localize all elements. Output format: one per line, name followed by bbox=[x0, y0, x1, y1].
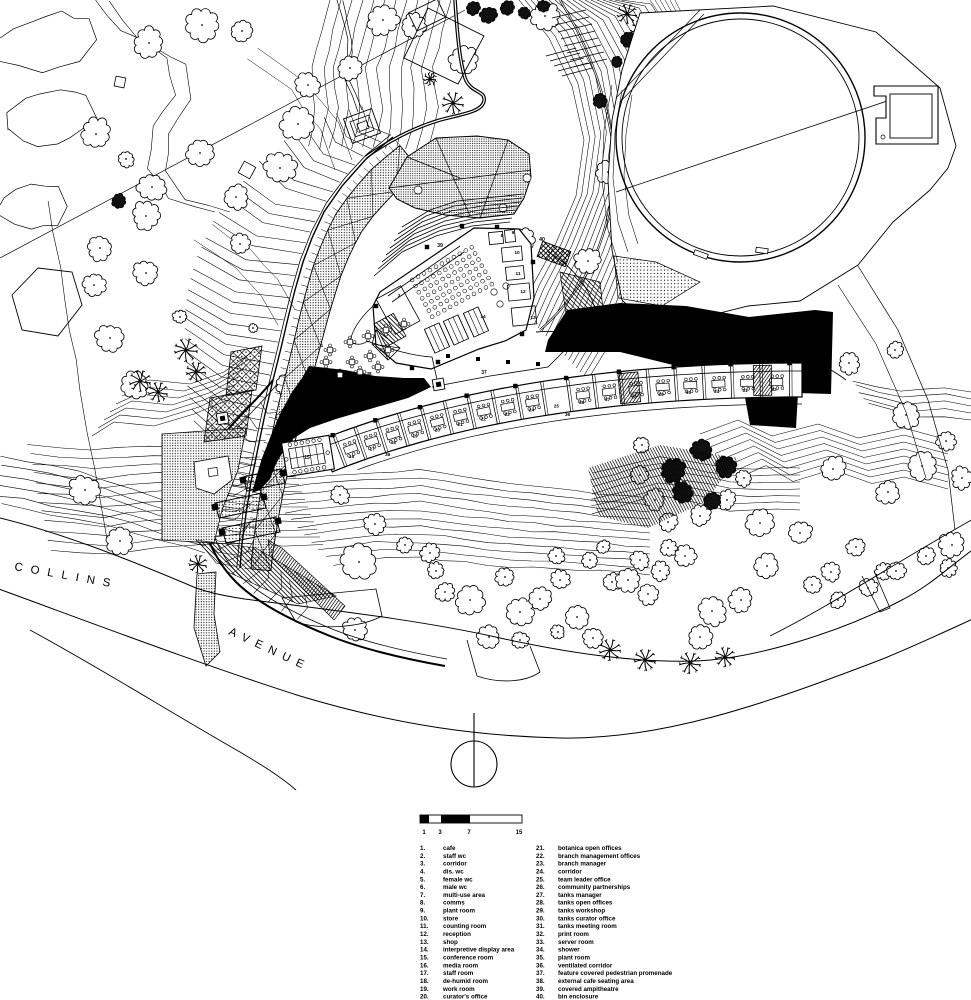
svg-text:30: 30 bbox=[686, 390, 692, 395]
svg-text:shower: shower bbox=[558, 947, 580, 954]
svg-text:plant room: plant room bbox=[443, 908, 475, 915]
svg-text:19: 19 bbox=[413, 433, 419, 438]
svg-text:25: 25 bbox=[554, 404, 560, 409]
svg-text:bin enclosure: bin enclosure bbox=[558, 994, 599, 1000]
svg-text:24.: 24. bbox=[536, 869, 545, 876]
svg-text:comms: comms bbox=[443, 900, 465, 907]
svg-text:2.: 2. bbox=[420, 853, 425, 860]
svg-text:36.: 36. bbox=[536, 962, 545, 969]
svg-text:external cafe seating area: external cafe seating area bbox=[558, 978, 634, 985]
svg-text:13.: 13. bbox=[420, 939, 429, 946]
svg-text:29: 29 bbox=[659, 392, 665, 397]
svg-text:23.: 23. bbox=[536, 861, 545, 868]
svg-text:conference room: conference room bbox=[443, 955, 494, 962]
svg-text:store: store bbox=[443, 915, 459, 922]
svg-text:9.: 9. bbox=[420, 908, 425, 915]
svg-text:39: 39 bbox=[437, 243, 443, 249]
svg-text:tanks manager: tanks manager bbox=[558, 892, 602, 899]
svg-text:curator's office: curator's office bbox=[443, 994, 488, 1000]
svg-text:dis. wc: dis. wc bbox=[443, 869, 464, 876]
svg-text:tanks workshop: tanks workshop bbox=[558, 908, 605, 915]
svg-text:14: 14 bbox=[480, 314, 486, 320]
svg-text:de-humid room: de-humid room bbox=[443, 978, 489, 985]
svg-text:3.: 3. bbox=[420, 861, 425, 868]
svg-text:male wc: male wc bbox=[443, 884, 468, 891]
svg-text:29.: 29. bbox=[536, 908, 545, 915]
svg-text:33: 33 bbox=[801, 387, 807, 392]
svg-text:corridor: corridor bbox=[558, 869, 582, 876]
svg-text:24: 24 bbox=[529, 408, 535, 413]
svg-text:16: 16 bbox=[349, 454, 355, 459]
svg-text:33.: 33. bbox=[536, 939, 545, 946]
svg-text:25.: 25. bbox=[536, 876, 545, 883]
svg-text:botanica open offices: botanica open offices bbox=[558, 845, 622, 852]
svg-text:22.: 22. bbox=[536, 853, 545, 860]
svg-text:11.: 11. bbox=[420, 923, 429, 930]
svg-text:staff wc: staff wc bbox=[443, 853, 467, 860]
svg-text:15.: 15. bbox=[420, 955, 429, 962]
svg-text:31: 31 bbox=[743, 388, 749, 393]
svg-text:1.: 1. bbox=[420, 845, 425, 852]
svg-text:21: 21 bbox=[458, 422, 464, 427]
svg-text:34.: 34. bbox=[536, 947, 545, 954]
svg-text:ventilated corridor: ventilated corridor bbox=[558, 962, 613, 969]
svg-text:19.: 19. bbox=[420, 986, 429, 993]
svg-text:23: 23 bbox=[505, 412, 511, 417]
svg-text:36: 36 bbox=[385, 452, 391, 458]
svg-text:37.: 37. bbox=[536, 970, 545, 977]
svg-text:6.: 6. bbox=[420, 884, 425, 891]
svg-text:reception: reception bbox=[443, 931, 471, 938]
svg-text:tanks curator office: tanks curator office bbox=[558, 915, 616, 922]
svg-text:28: 28 bbox=[632, 394, 638, 399]
svg-text:5.: 5. bbox=[420, 876, 425, 883]
svg-text:12: 12 bbox=[520, 289, 526, 295]
svg-text:10.: 10. bbox=[420, 915, 429, 922]
svg-text:21.: 21. bbox=[536, 845, 545, 852]
svg-text:female wc: female wc bbox=[443, 876, 473, 883]
svg-text:8: 8 bbox=[501, 233, 504, 239]
svg-text:team leader office: team leader office bbox=[558, 876, 611, 883]
svg-text:22: 22 bbox=[481, 417, 487, 422]
svg-text:26: 26 bbox=[579, 400, 585, 405]
svg-text:40.: 40. bbox=[536, 994, 545, 1000]
svg-text:work room: work room bbox=[442, 986, 475, 993]
svg-text:30.: 30. bbox=[536, 915, 545, 922]
svg-text:17.: 17. bbox=[420, 970, 429, 977]
svg-text:18: 18 bbox=[391, 440, 397, 445]
svg-text:37: 37 bbox=[481, 370, 487, 376]
svg-text:7.: 7. bbox=[420, 892, 425, 899]
svg-text:27: 27 bbox=[605, 397, 611, 402]
svg-text:31.: 31. bbox=[536, 923, 545, 930]
svg-text:36: 36 bbox=[565, 412, 571, 418]
svg-text:35.: 35. bbox=[536, 955, 545, 962]
svg-text:40: 40 bbox=[539, 237, 545, 243]
svg-text:38: 38 bbox=[366, 371, 372, 376]
svg-text:14.: 14. bbox=[420, 947, 429, 954]
svg-text:32: 32 bbox=[772, 387, 778, 392]
svg-text:15: 15 bbox=[304, 455, 310, 461]
svg-text:shop: shop bbox=[443, 939, 458, 946]
svg-text:10: 10 bbox=[514, 250, 520, 256]
svg-text:39.: 39. bbox=[536, 986, 545, 993]
svg-text:multi-use area: multi-use area bbox=[443, 892, 486, 899]
svg-text:community partnerships: community partnerships bbox=[558, 884, 631, 891]
svg-text:15: 15 bbox=[516, 830, 523, 836]
svg-text:branch management offices: branch management offices bbox=[558, 853, 641, 860]
svg-text:18.: 18. bbox=[420, 978, 429, 985]
svg-text:13: 13 bbox=[530, 315, 536, 321]
svg-text:38.: 38. bbox=[536, 978, 545, 985]
svg-text:3: 3 bbox=[398, 293, 401, 299]
svg-text:4.: 4. bbox=[420, 869, 425, 876]
svg-text:20: 20 bbox=[435, 427, 441, 432]
svg-text:interpretive display area: interpretive display area bbox=[443, 947, 515, 954]
svg-text:print room: print room bbox=[558, 931, 589, 938]
svg-text:counting room: counting room bbox=[443, 923, 487, 930]
svg-text:staff room: staff room bbox=[443, 970, 474, 977]
svg-text:9: 9 bbox=[512, 230, 515, 236]
svg-text:8.: 8. bbox=[420, 900, 425, 907]
svg-text:26.: 26. bbox=[536, 884, 545, 891]
svg-text:34: 34 bbox=[714, 389, 720, 394]
svg-text:32.: 32. bbox=[536, 931, 545, 938]
svg-text:12.: 12. bbox=[420, 931, 429, 938]
svg-text:cafe: cafe bbox=[443, 845, 456, 852]
svg-text:16.: 16. bbox=[420, 962, 429, 969]
svg-text:28.: 28. bbox=[536, 900, 545, 907]
svg-text:branch manager: branch manager bbox=[558, 861, 607, 868]
svg-text:20.: 20. bbox=[420, 994, 429, 1000]
svg-text:17: 17 bbox=[370, 447, 376, 452]
svg-text:27.: 27. bbox=[536, 892, 545, 899]
svg-text:plant room: plant room bbox=[558, 955, 590, 962]
svg-text:server room: server room bbox=[558, 939, 594, 946]
svg-text:tanks open offices: tanks open offices bbox=[558, 900, 613, 907]
svg-text:media room: media room bbox=[443, 962, 479, 969]
svg-text:11: 11 bbox=[515, 271, 520, 277]
svg-text:corridor: corridor bbox=[443, 861, 467, 868]
svg-text:tanks meeting room: tanks meeting room bbox=[558, 923, 617, 930]
svg-text:covered ampitheatre: covered ampitheatre bbox=[558, 986, 619, 993]
svg-text:feature covered pedestrian pro: feature covered pedestrian promenade bbox=[558, 970, 673, 977]
